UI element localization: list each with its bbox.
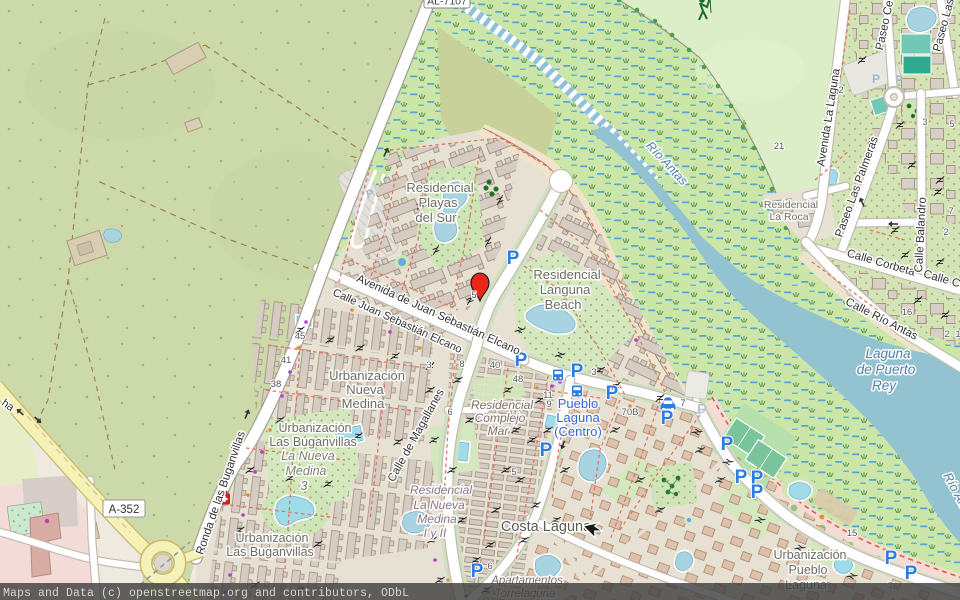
svg-text:8: 8	[459, 359, 464, 370]
svg-text:Playas: Playas	[418, 195, 458, 210]
svg-text:P: P	[471, 561, 484, 582]
svg-text:P: P	[571, 361, 584, 382]
svg-text:7: 7	[680, 398, 685, 409]
svg-text:Beach: Beach	[545, 297, 582, 312]
svg-text:La Nueva: La Nueva	[281, 449, 335, 463]
svg-text:Urbanización: Urbanización	[329, 368, 405, 383]
svg-text:P: P	[507, 248, 520, 269]
svg-text:AL-7107: AL-7107	[427, 0, 467, 8]
svg-text:7: 7	[948, 206, 953, 217]
svg-text:21: 21	[774, 141, 785, 152]
svg-text:9: 9	[546, 399, 551, 410]
svg-text:Rey: Rey	[872, 378, 897, 393]
svg-text:Medina: Medina	[286, 464, 327, 478]
svg-text:48: 48	[513, 374, 524, 385]
svg-text:I y II: I y II	[424, 526, 447, 540]
svg-text:5: 5	[949, 119, 954, 130]
svg-text:3: 3	[922, 117, 927, 128]
svg-text:del Sur: del Sur	[415, 210, 457, 225]
svg-text:5: 5	[511, 467, 516, 478]
svg-text:Pueblo: Pueblo	[558, 396, 598, 411]
svg-text:5: 5	[471, 290, 476, 301]
svg-text:Medina: Medina	[417, 512, 457, 526]
svg-text:2: 2	[943, 227, 948, 238]
svg-text:Maps and Data (c) openstreetma: Maps and Data (c) openstreetmap.org and …	[3, 587, 409, 600]
svg-text:P: P	[751, 482, 764, 503]
svg-text:P: P	[872, 72, 880, 86]
svg-text:45: 45	[295, 331, 306, 342]
svg-text:Complejo: Complejo	[475, 411, 526, 425]
svg-text:La Roca: La Roca	[769, 211, 808, 223]
svg-text:Residencial: Residencial	[764, 199, 818, 211]
svg-text:Laguna: Laguna	[865, 346, 911, 361]
svg-text:P: P	[735, 467, 748, 488]
svg-text:Las Buganvillas: Las Buganvillas	[269, 435, 357, 449]
svg-text:Nueva: Nueva	[346, 382, 384, 397]
svg-text:P: P	[697, 401, 707, 418]
svg-text:Residencial: Residencial	[406, 180, 473, 195]
svg-text:Medina: Medina	[342, 396, 385, 411]
svg-text:Urbanización: Urbanización	[236, 531, 309, 545]
svg-text:70B: 70B	[622, 407, 639, 418]
svg-text:3: 3	[426, 360, 431, 371]
svg-text:40: 40	[490, 360, 501, 371]
svg-text:P: P	[885, 548, 898, 569]
svg-text:P: P	[905, 563, 918, 584]
svg-text:38: 38	[271, 379, 282, 390]
svg-text:Residencial: Residencial	[533, 267, 600, 282]
svg-text:Residencial: Residencial	[410, 483, 472, 497]
svg-text:41: 41	[281, 355, 292, 366]
svg-text:P: P	[661, 408, 674, 429]
svg-text:Las Buganvillas: Las Buganvillas	[226, 545, 314, 559]
svg-text:1: 1	[955, 329, 960, 340]
svg-text:Costa Laguna: Costa Laguna	[501, 519, 592, 535]
svg-text:A-352: A-352	[109, 504, 140, 516]
svg-text:Urbanización: Urbanización	[279, 421, 352, 435]
svg-text:Urbanización: Urbanización	[774, 548, 847, 562]
svg-text:La Nueva: La Nueva	[413, 498, 465, 512]
svg-text:Languna: Languna	[540, 282, 591, 297]
svg-text:Pueblo: Pueblo	[789, 563, 828, 577]
svg-text:6: 6	[487, 561, 492, 572]
svg-text:3: 3	[591, 367, 596, 378]
svg-text:de Puerto: de Puerto	[857, 362, 916, 377]
svg-text:2: 2	[944, 329, 949, 340]
svg-text:P: P	[606, 383, 619, 404]
svg-text:P: P	[540, 440, 553, 461]
svg-text:Laguna: Laguna	[556, 410, 600, 425]
svg-text:6: 6	[447, 407, 452, 418]
svg-text:15: 15	[847, 528, 858, 539]
svg-text:2: 2	[838, 85, 843, 96]
svg-text:16: 16	[902, 307, 913, 318]
svg-text:3: 3	[301, 479, 308, 493]
svg-text:Residencial: Residencial	[471, 398, 533, 412]
svg-text:(Centro): (Centro)	[554, 424, 602, 439]
svg-text:Mar: Mar	[488, 424, 510, 438]
svg-text:P: P	[721, 434, 734, 455]
